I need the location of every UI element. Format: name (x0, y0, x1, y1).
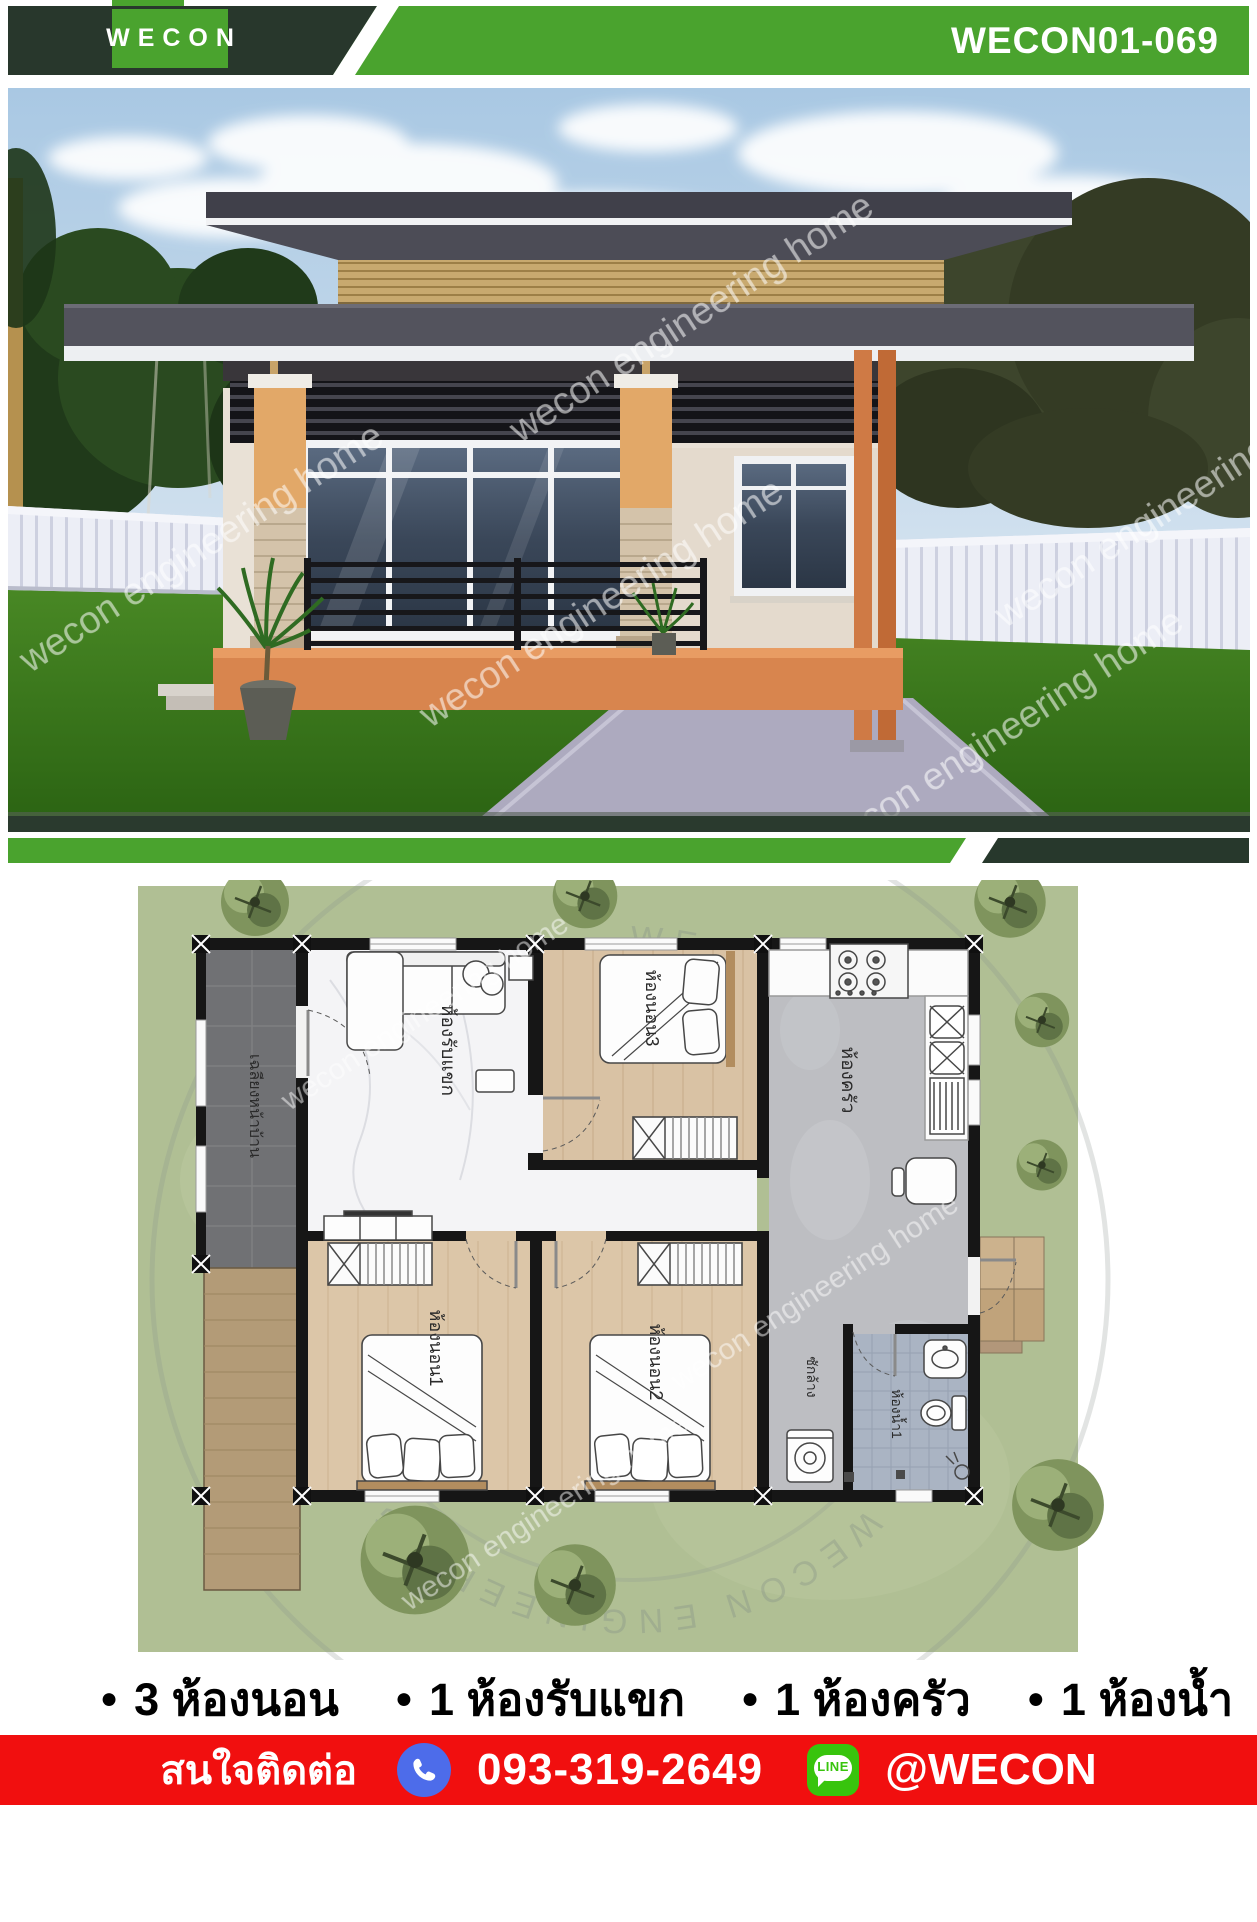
room-label-bedroom3: ห้องนอน3 (642, 970, 662, 1047)
header-banner: WECON WECON01-069 (8, 6, 1249, 75)
brand-logo-text: WECON (98, 24, 242, 53)
room-label-porch: เฉลียงหน้าบ้าน (246, 1054, 264, 1158)
bullet-icon: ● (100, 1684, 118, 1714)
bed (600, 951, 735, 1067)
contact-label: สนใจติดต่อ (160, 1738, 357, 1802)
feature-item: ● 3 ห้องนอน (100, 1663, 339, 1735)
east-terrace (980, 1237, 1044, 1353)
feature-item: ● 1 ห้องครัว (741, 1663, 971, 1735)
model-code: WECON01-069 (951, 6, 1219, 75)
feature-item: ● 1 ห้องน้ำ (1027, 1663, 1233, 1735)
line-id: @WECON (885, 1745, 1097, 1795)
bullet-icon: ● (1027, 1684, 1045, 1714)
feature-list: ● 3 ห้องนอน ● 1 ห้องรับแขก ● 1 ห้องครัว … (0, 1668, 1257, 1730)
feature-label: 1 ห้องรับแขก (429, 1663, 685, 1735)
photo-bottom-strip (8, 816, 1250, 832)
bed (357, 1335, 487, 1490)
feature-item: ● 1 ห้องรับแขก (395, 1663, 685, 1735)
floor-plan: WECON ENGINEERING HOME • WECON ENGINEERI… (130, 880, 1140, 1660)
phone-icon (397, 1743, 451, 1797)
divider-stripe-green (8, 838, 966, 863)
line-bubble: LINE (814, 1755, 852, 1781)
feature-label: 1 ห้องครัว (775, 1663, 971, 1735)
line-badge-text: LINE (814, 1759, 852, 1774)
wardrobe (633, 1117, 737, 1159)
room-label-bedroom2: ห้องนอน2 (646, 1324, 666, 1401)
poster-page: WECON WECON01-069 (0, 0, 1257, 1922)
wood-slat-band (338, 260, 944, 306)
line-icon: LINE (807, 1744, 859, 1796)
feature-label: 1 ห้องน้ำ (1061, 1663, 1233, 1735)
brand-logo: WECON (112, 9, 228, 68)
contact-bar: สนใจติดต่อ 093-319-2649 LINE @WECON (0, 1735, 1257, 1805)
side-deck (204, 1268, 300, 1590)
bullet-icon: ● (395, 1684, 413, 1714)
house-render-photo: wecon engineering home wecon engineering… (8, 88, 1250, 832)
upper-roof-slab (206, 192, 1072, 218)
bullet-icon: ● (741, 1684, 759, 1714)
room-label-bedroom1: ห้องนอน1 (426, 1310, 446, 1387)
logo-tab (112, 0, 184, 6)
wardrobe (328, 1243, 432, 1285)
room-label-kitchen: ห้องครัว (837, 1047, 858, 1114)
feature-label: 3 ห้องนอน (134, 1663, 339, 1735)
phone-number: 093-319-2649 (477, 1745, 763, 1795)
tv-cabinet (324, 1211, 432, 1240)
bathroom-sink (924, 1340, 966, 1378)
room-label-laundry: ซักล้าง (804, 1356, 820, 1397)
room-label-bathroom: ห้องน้ำ1 (889, 1389, 907, 1439)
divider-stripe-dark (982, 838, 1249, 863)
wardrobe (638, 1243, 742, 1285)
